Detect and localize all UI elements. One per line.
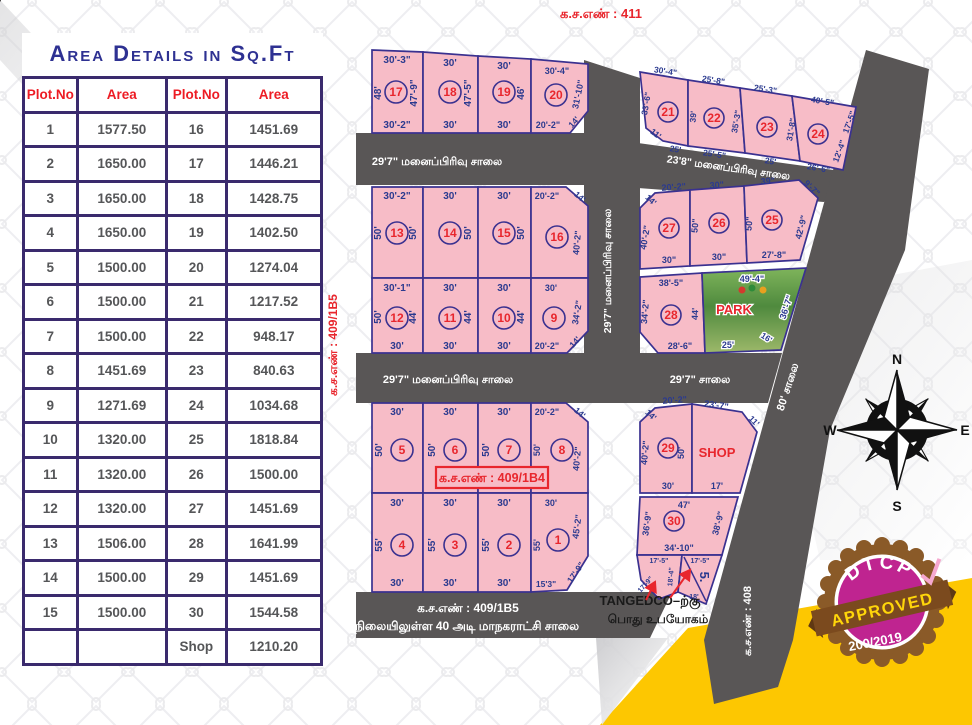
dimension-label: 25' [722, 340, 734, 350]
dimension-label: 30" [662, 255, 676, 265]
area-cell: 1271.69 [77, 388, 166, 423]
dimension-label: 20'-2" [535, 407, 559, 417]
survey-number-label: க.ச.எண் : 411 [560, 6, 642, 21]
plot-number: 10 [497, 311, 511, 325]
dimension-label: 30' [497, 341, 511, 352]
dimension-label: 30' [497, 578, 511, 589]
area-cell: 1451.69 [226, 492, 321, 527]
area-cell: 1217.52 [226, 285, 321, 320]
plot-25: 25 39" 9'-7" 50" 42'-9" 27'-8" [743, 176, 822, 263]
dimension-label: 15'3" [536, 579, 556, 589]
park-label: PARK [716, 302, 752, 317]
road-label: 29'7" மனைப்பிரிவு சாலை [372, 156, 502, 168]
plot-no-cell: 10 [24, 423, 78, 458]
dimension-label: 46' [516, 86, 527, 100]
area-cell: 1641.99 [226, 526, 321, 561]
plot-number: 13 [390, 226, 404, 240]
dimension-label: 30' [443, 191, 457, 202]
area-cell: 1500.00 [77, 250, 166, 285]
plot-28: 28 38'-5" 34'-2" 44' 28'-6" [639, 273, 705, 353]
dimension-label: 55' [427, 538, 438, 552]
header-plot-no: Plot.No [24, 78, 78, 113]
dimension-label: 27'-8" [762, 250, 786, 260]
dimension-label: 30' [390, 407, 404, 418]
dimension-label: 30' [443, 58, 457, 69]
table-row: 91271.69241034.68 [24, 388, 322, 423]
dimension-label: 50' [463, 226, 474, 240]
dimension-label: 50' [516, 226, 527, 240]
plot-no-cell: 11 [24, 457, 78, 492]
plot-17: 17 30'-3" 48' 47'-9" 30'-2" [372, 50, 423, 133]
plot-no-cell: 25 [167, 423, 227, 458]
plot-no-cell: 3 [24, 181, 78, 216]
dimension-label: 30' [497, 498, 511, 509]
area-cell: 1320.00 [77, 423, 166, 458]
dimension-label: 30' [443, 578, 457, 589]
plot-no-cell: 22 [167, 319, 227, 354]
plot-13: 13 30'-2" 50' 50' [372, 187, 423, 278]
area-details-card: Area Details in Sq.Ft Plot.No Area Plot.… [22, 33, 323, 666]
dimension-label: 44' [690, 308, 700, 320]
dimension-label: 55' [532, 539, 542, 551]
dimension-label: 50' [532, 444, 542, 456]
plot-number: 4 [399, 538, 406, 552]
dimension-label: 20'-2" [536, 120, 560, 130]
plot-no-cell: 19 [167, 216, 227, 251]
dimension-label: 50" [689, 218, 700, 233]
dimension-label: 20'-2" [535, 341, 559, 351]
table-row: 11577.50161451.69 [24, 112, 322, 147]
plot-no-cell: 13 [24, 526, 78, 561]
plot-number: 29 [661, 441, 675, 455]
dimension-label: 55' [481, 538, 492, 552]
area-cell: 1451.69 [226, 561, 321, 596]
table-row: 131506.00281641.99 [24, 526, 322, 561]
header-plot-no: Plot.No [167, 78, 227, 113]
park-tree [760, 287, 767, 294]
plot-no-cell: 29 [167, 561, 227, 596]
dimension-label: 30' [545, 498, 557, 508]
plot-number: 17 [389, 85, 403, 99]
plot-2: 2 30' 55' 30' [478, 493, 531, 592]
plot-number: 20 [549, 88, 563, 102]
area-cell: 1818.84 [226, 423, 321, 458]
compass-east-label: E [960, 422, 969, 438]
dimension-label: 47'-9" [409, 79, 420, 106]
plot-no-cell: 24 [167, 388, 227, 423]
area-cell: 1650.00 [77, 216, 166, 251]
area-cell: 1500.00 [77, 319, 166, 354]
dimension-label: 30' [443, 498, 457, 509]
area-cell: 1428.75 [226, 181, 321, 216]
area-cell: 1650.00 [77, 181, 166, 216]
dimension-label: 30' [497, 120, 511, 131]
area-cell: 840.63 [226, 354, 321, 389]
area-cell: 1034.68 [226, 388, 321, 423]
dimension-label: 40'-2" [639, 440, 651, 465]
table-row: 101320.00251818.84 [24, 423, 322, 458]
table-row: Shop1210.20 [24, 630, 322, 665]
dimension-label: 30' [662, 481, 674, 491]
dimension-label: 30' [545, 283, 557, 293]
plot-number: 16 [550, 230, 564, 244]
dimension-label: 44' [408, 310, 419, 324]
plot-5: 5 30' 50' [372, 403, 423, 493]
dimension-label: 30' [390, 341, 404, 352]
compass-south-label: S [892, 498, 901, 514]
plot-number: 27 [662, 221, 676, 235]
dimension-label: 38'-5" [659, 278, 683, 288]
compass-west-label: W [823, 422, 837, 438]
street-number-label: 5. [697, 572, 712, 583]
plot-no-cell: 15 [24, 595, 78, 630]
plot-number: 23 [760, 120, 774, 134]
header-area: Area [226, 78, 321, 113]
plot-number: 2 [506, 538, 513, 552]
plot-4: 4 30' 55' 30' [372, 493, 423, 592]
dimension-label: 30' [390, 498, 404, 509]
plot-number: 5 [399, 443, 406, 457]
plot-number: 18 [443, 85, 457, 99]
table-row: 31650.00181428.75 [24, 181, 322, 216]
dimension-label: 50' [676, 447, 686, 459]
plot-no-cell: 17 [167, 147, 227, 182]
area-cell: 1451.69 [226, 112, 321, 147]
plot-11: 11 30' 44' 30' [423, 278, 478, 353]
dimension-label: 30'-2" [383, 120, 410, 131]
plot-no-cell: 27 [167, 492, 227, 527]
area-table: Plot.No Area Plot.No Area 11577.50161451… [22, 76, 323, 666]
table-row: 111320.00261500.00 [24, 457, 322, 492]
dimension-label: 30' [443, 407, 457, 418]
plot-number: 26 [712, 216, 726, 230]
plot-number: 25 [765, 213, 779, 227]
area-cell: 1650.00 [77, 147, 166, 182]
dimension-label: 30' [497, 61, 511, 72]
area-cell: 1210.20 [226, 630, 321, 665]
layout-flyer: Area Details in Sq.Ft Plot.No Area Plot.… [0, 0, 972, 725]
plot-no-cell: 1 [24, 112, 78, 147]
dimension-label: 30'-2" [383, 191, 410, 202]
plot-number: 8 [559, 443, 566, 457]
plot-no-cell: 20 [167, 250, 227, 285]
dimension-label: 20'-2" [662, 394, 687, 406]
plot-27: 27 14' 20'-2" 40'-2" 30" [638, 181, 690, 269]
table-row: 141500.00291451.69 [24, 561, 322, 596]
dimension-label: 17' [711, 481, 723, 491]
dimension-label: 49'-4" [740, 274, 764, 284]
area-cell: 1500.00 [77, 561, 166, 596]
header-area: Area [77, 78, 166, 113]
plot-1: 1 30' 55' 45'-2" 17'-9" 15'3" [531, 493, 588, 592]
plot-12: 12 30'-1" 50' 44' 30' [372, 278, 423, 353]
plot-no-cell: 18 [167, 181, 227, 216]
dimension-label: 50' [373, 226, 384, 240]
park-tree [739, 287, 746, 294]
plot-no-cell: 8 [24, 354, 78, 389]
plot-number: 21 [661, 105, 675, 119]
dimension-label: 34'-2" [639, 299, 651, 324]
area-cell [77, 630, 166, 665]
dimension-label: 47' [678, 500, 690, 510]
plot-20: 20 30'-4" 31'-10" 14' 20'-2" [531, 59, 588, 133]
plot-no-cell: 5 [24, 250, 78, 285]
dimension-label: 50' [374, 443, 385, 457]
dimension-label: 30' [443, 283, 457, 294]
plot-no-cell: 2 [24, 147, 78, 182]
plot-no-cell: 7 [24, 319, 78, 354]
plot-no-cell: Shop [167, 630, 227, 665]
table-row: 81451.6923840.63 [24, 354, 322, 389]
dimension-label: 30' [497, 407, 511, 418]
plot-no-cell [24, 630, 78, 665]
table-row: 151500.00301544.58 [24, 595, 322, 630]
plot-no-cell: 9 [24, 388, 78, 423]
dimension-label: 55' [374, 538, 385, 552]
plot-22: 22 25'-8" 39' 35'-3" 25'-5" [688, 73, 745, 160]
area-cell: 948.17 [226, 319, 321, 354]
dimension-label: 50' [427, 443, 438, 457]
area-table-title: Area Details in Sq.Ft [22, 33, 323, 76]
dimension-label: 25' [764, 155, 777, 167]
table-row: 71500.0022948.17 [24, 319, 322, 354]
plot-number: 12 [390, 311, 404, 325]
area-cell: 1320.00 [77, 492, 166, 527]
plot-18: 18 30' 47'-5" 30' [423, 52, 478, 133]
dimension-label: 17'-5" [691, 558, 710, 565]
road-label: க.ச.எண் : 409/1B5 [417, 601, 519, 615]
dimension-label: 30'-4" [545, 66, 569, 76]
plot-number: 14 [443, 226, 457, 240]
plot-number: 30 [667, 514, 681, 528]
survey-number-label: க.ச.எண் : 409/1B4 [439, 471, 545, 485]
dimension-label: 17'-5" [650, 558, 669, 565]
plot-number: 6 [452, 443, 459, 457]
table-row: 41650.00191402.50 [24, 216, 322, 251]
plot-26: 26 30" 50" 30" [689, 180, 747, 266]
road-label: 29'7" சாலை [670, 374, 731, 386]
area-cell: 1577.50 [77, 112, 166, 147]
plot-number: 28 [664, 308, 678, 322]
road-label: 29'7" மனைப்பிரிவு சாலை [602, 209, 614, 334]
plot-number: 11 [444, 311, 457, 325]
plot-no-cell: 26 [167, 457, 227, 492]
plot-number: 24 [811, 127, 825, 141]
table-row: 21650.00171446.21 [24, 147, 322, 182]
dimension-label: 30' [497, 283, 511, 294]
area-cell: 1446.21 [226, 147, 321, 182]
plot-16: 16 20'-2" 14' 40'-2" [531, 187, 588, 278]
plot-3: 3 30' 55' 30' [423, 493, 478, 592]
park-tree [749, 285, 756, 292]
dimension-label: 30' [497, 191, 511, 202]
plot-no-cell: 16 [167, 112, 227, 147]
dimension-label: 48' [373, 86, 384, 100]
table-row: 61500.00211217.52 [24, 285, 322, 320]
area-cell: 1500.00 [77, 595, 166, 630]
plot-10: 10 30' 44' 30' [478, 278, 531, 353]
area-cell: 1320.00 [77, 457, 166, 492]
compass-north-label: N [892, 351, 902, 367]
area-cell: 1500.00 [77, 285, 166, 320]
plot-no-cell: 23 [167, 354, 227, 389]
dimension-label: 50" [743, 216, 754, 231]
plot-15: 15 30' 50' [478, 187, 531, 278]
plot-number: 1 [555, 533, 562, 547]
survey-number-box: க.ச.எண் : 409/1B4 [436, 467, 548, 488]
dimension-label: 34'-10" [664, 543, 693, 553]
plot-no-cell: 12 [24, 492, 78, 527]
dimension-label: 30'-1" [383, 283, 410, 294]
plot-no-cell: 14 [24, 561, 78, 596]
dimension-label: 50' [373, 310, 384, 324]
area-cell: 1544.58 [226, 595, 321, 630]
dimension-label: 28'-6" [668, 341, 692, 351]
plot-no-cell: 30 [167, 595, 227, 630]
plot-9: 9 30' 34'-2" 14' 20'-2" [531, 278, 588, 353]
dimension-label: 30" [709, 180, 724, 191]
plot-14: 14 30' 50' [423, 187, 478, 278]
plot-number: 15 [497, 226, 511, 240]
dimension-label: 30' [390, 578, 404, 589]
plot-number: 3 [452, 538, 459, 552]
shop-label: SHOP [699, 445, 736, 460]
plot-23: 23 25'-3" 31'-8" 25' [740, 82, 800, 167]
plot-21: 21 30'-4" 33'-6" 11' 25' [639, 64, 688, 155]
dimension-label: 30'-3" [383, 55, 410, 66]
dimension-label: 50' [481, 443, 492, 457]
dimension-label: 30" [712, 252, 726, 262]
dimension-label: 44' [516, 310, 527, 324]
plot-number: 9 [551, 311, 558, 325]
survey-number-label: க.ச.எண் : 408 [742, 586, 754, 656]
tangedco-label: பொது உபயோகம் [608, 612, 709, 627]
area-cell: 1451.69 [77, 354, 166, 389]
plot-no-cell: 28 [167, 526, 227, 561]
dimension-label: 44' [463, 310, 474, 324]
plot-number: 7 [506, 443, 513, 457]
plot-30: 30 47' 36'-9" 38'-9" 34'-10" [637, 497, 738, 555]
survey-number-label: க.ச.எண் : 409/1B5 [326, 294, 340, 396]
table-header-row: Plot.No Area Plot.No Area [24, 78, 322, 113]
road-label: நிலையிலுள்ள 40 அடி மாநகராட்சி சாலை [354, 619, 579, 634]
area-cell: 1274.04 [226, 250, 321, 285]
tangedco-label: TANGEDCO–ற்கு [600, 593, 702, 609]
dimension-label: 39' [688, 111, 699, 123]
table-row: 121320.00271451.69 [24, 492, 322, 527]
dimension-label: 40'-2" [571, 230, 583, 255]
dimension-label: 30' [443, 341, 457, 352]
road-label: 29'7" மனைப்பிரிவு சாலை [383, 374, 513, 386]
dimension-label: 40'-2" [571, 446, 583, 471]
dimension-label: 20'-2" [535, 191, 559, 201]
plot-no-cell: 6 [24, 285, 78, 320]
area-cell: 1506.00 [77, 526, 166, 561]
dimension-label: 20'-2" [661, 181, 686, 193]
plot-number: 22 [707, 111, 721, 125]
area-cell: 1402.50 [226, 216, 321, 251]
plot-no-cell: 21 [167, 285, 227, 320]
plot-19: 19 30' 46' 30' [478, 56, 531, 133]
dimension-label: 47'-5" [463, 79, 474, 106]
table-row: 51500.00201274.04 [24, 250, 322, 285]
plot-number: 19 [497, 85, 511, 99]
dimension-label: 50' [408, 226, 419, 240]
plot-no-cell: 4 [24, 216, 78, 251]
plot-29: 29 14' 20'-2" 40'-2" 50' 30' [639, 394, 692, 493]
area-cell: 1500.00 [226, 457, 321, 492]
dimension-label: 30' [443, 120, 457, 131]
